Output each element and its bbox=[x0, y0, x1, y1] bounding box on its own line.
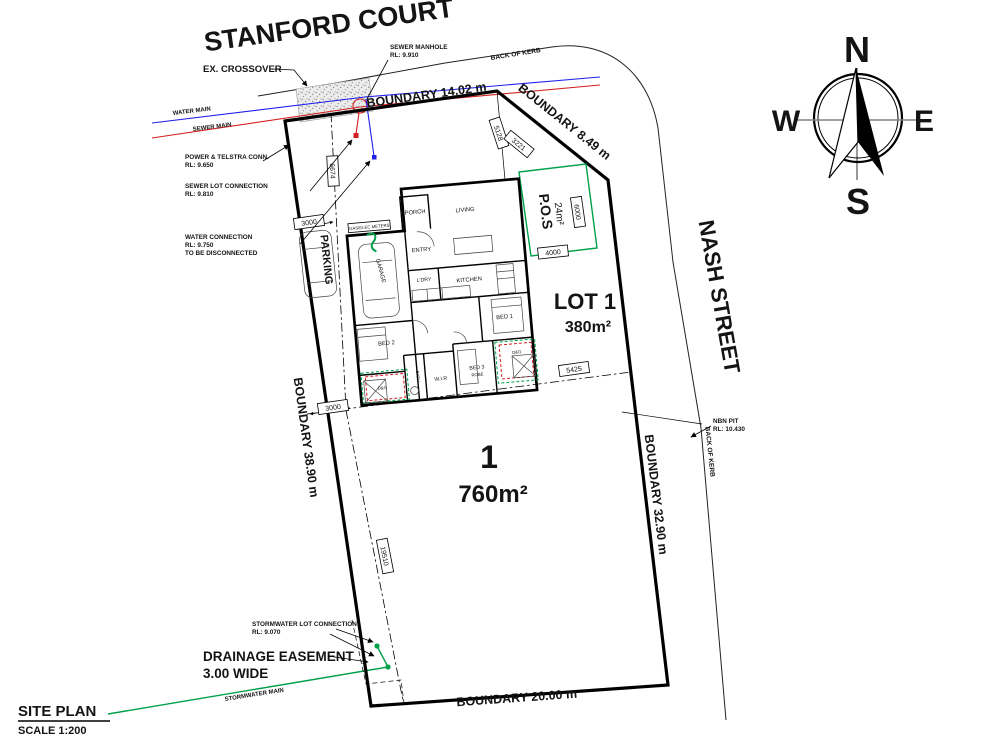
lot-division-line bbox=[307, 372, 631, 414]
stormwater-lot-rl: RL: 9.070 bbox=[252, 629, 281, 636]
bed2-door-arc bbox=[413, 319, 428, 334]
living-kitchen-wall bbox=[408, 260, 526, 270]
boundary-left-label: BOUNDARY 38.90 m bbox=[291, 377, 322, 499]
porch-label: PORCH bbox=[404, 209, 425, 217]
sewer-lot-label: SEWER LOT CONNECTION bbox=[185, 183, 268, 190]
water-connection-label: WATER CONNECTION bbox=[185, 234, 253, 241]
bed2-dg-wall bbox=[359, 371, 405, 375]
entry-label: ENTRY bbox=[411, 247, 431, 255]
gas-meter-icon bbox=[367, 233, 377, 252]
stormwater-connection-point-2 bbox=[385, 664, 390, 669]
back-of-kerb-top-label: BACK OF KERB bbox=[490, 47, 541, 62]
bed1-west-wall bbox=[479, 297, 483, 342]
lot1-area-label: 380m² bbox=[565, 319, 611, 336]
stormwater-lot-label: STORMWATER LOT CONNECTION bbox=[252, 621, 357, 628]
bed1-label: BED 1 bbox=[496, 314, 513, 321]
dim-4000: 4000 bbox=[538, 245, 569, 259]
dg-left-label: D&G bbox=[377, 385, 387, 391]
power-telstra-rl: RL: 9.650 bbox=[185, 162, 214, 169]
footer: SITE PLAN SCALE 1:200 bbox=[18, 703, 110, 737]
bed3-robe-label: ROBE bbox=[471, 372, 484, 378]
boundary-top-label: BOUNDARY 14.02 m bbox=[366, 80, 488, 111]
boundary-bottom-label: BOUNDARY 20.00 m bbox=[456, 687, 578, 709]
bed2-pillow bbox=[358, 335, 386, 337]
kitchen-island bbox=[454, 235, 493, 254]
kitchen-label: KITCHEN bbox=[456, 276, 482, 284]
compass-w: W bbox=[772, 105, 801, 138]
compass-rose: N S W E bbox=[772, 29, 934, 222]
water-connection-point bbox=[372, 155, 377, 160]
nbn-crossing-line bbox=[622, 412, 702, 424]
streets: BACK OF KERB BACK OF KERB STANFORD COURT… bbox=[202, 0, 745, 720]
site-plan-drawing: BACK OF KERB BACK OF KERB STANFORD COURT… bbox=[0, 0, 985, 741]
dg-right-label: D&G bbox=[512, 349, 522, 355]
bed3-door-arc bbox=[454, 331, 467, 344]
water-connection-note: TO BE DISCONNECTED bbox=[185, 250, 258, 257]
water-connection-rl: RL: 9.750 bbox=[185, 242, 214, 249]
sewer-manhole-label: SEWER MANHOLE bbox=[390, 44, 448, 51]
sewer-main-label: SEWER MAIN bbox=[193, 122, 232, 133]
nbn-pit-label: NBN PIT bbox=[713, 418, 739, 425]
kitchen-bench bbox=[412, 285, 471, 301]
annotations: EX. CROSSOVER SEWER MANHOLE RL: 9.910 PO… bbox=[185, 44, 745, 681]
bench-divider-1 bbox=[427, 289, 428, 300]
dim-19510: 19510 bbox=[376, 538, 393, 573]
garage-bed2-wall bbox=[355, 321, 413, 326]
pantry-shelf-2 bbox=[497, 277, 514, 278]
pantry-shelf-1 bbox=[497, 271, 514, 272]
stormwater-riser bbox=[377, 646, 388, 667]
bed1-pillow bbox=[492, 305, 522, 308]
dim-3000-bottom: 3000 bbox=[317, 399, 348, 414]
nash-street-label: NASH STREET bbox=[694, 218, 746, 376]
kitchen-hall-wall bbox=[411, 292, 529, 302]
sewer-lot-rl: RL: 9.810 bbox=[185, 191, 214, 198]
toilet bbox=[410, 386, 419, 395]
dim-6674: 6674 bbox=[327, 156, 340, 187]
wir-east-wall bbox=[453, 344, 458, 397]
garage-label: GARAGE bbox=[374, 258, 386, 284]
car-rear-window bbox=[366, 298, 396, 301]
laundry-label: L'DRY bbox=[416, 277, 432, 284]
power-telstra-leader bbox=[263, 145, 289, 161]
sewer-connection-point bbox=[354, 133, 359, 138]
drainage-easement-width: 3.00 WIDE bbox=[203, 666, 268, 681]
compass-n: N bbox=[844, 29, 870, 70]
hall-south-wall-1 bbox=[404, 351, 454, 355]
parent-lot-area: 760m² bbox=[458, 481, 527, 508]
living-label: LIVING bbox=[455, 207, 475, 215]
dim-6674-value: 6674 bbox=[328, 163, 336, 179]
nbn-pit-rl: RL: 10.430 bbox=[713, 426, 745, 433]
stormwater-connection-point-1 bbox=[374, 643, 379, 648]
private-open-space: P.O.S 24m² bbox=[519, 164, 597, 256]
power-telstra-label: POWER & TELSTRA CONN. bbox=[185, 154, 269, 161]
sewer-manhole-rl: RL: 9.910 bbox=[390, 52, 419, 59]
garage-car bbox=[358, 242, 400, 319]
wir-label: W.I.R bbox=[434, 376, 447, 383]
dim-6000: 6000 bbox=[570, 196, 585, 227]
bench-divider-2 bbox=[442, 288, 443, 299]
bath-west-wall bbox=[404, 355, 408, 401]
site-plan-title: SITE PLAN bbox=[18, 703, 96, 720]
dim-5128: 5128 bbox=[489, 117, 509, 149]
laundry-wall bbox=[438, 268, 441, 300]
site-plan-page: BACK OF KERB BACK OF KERB STANFORD COURT… bbox=[0, 0, 985, 741]
lot-area-texts: LOT 1 380m² 1 760m² bbox=[458, 289, 616, 508]
sewer-connection-drop bbox=[356, 113, 359, 134]
dim-5425: 5425 bbox=[558, 361, 589, 376]
entry-door-arc bbox=[417, 230, 434, 247]
bed2-label: BED 2 bbox=[378, 340, 395, 347]
back-of-kerb-right-label: BACK OF KERB bbox=[703, 426, 715, 477]
bath-label: BATH bbox=[415, 370, 421, 382]
utility-mains: WATER MAIN SEWER MAIN STORMWATER MAIN bbox=[108, 77, 600, 714]
lot1-label: LOT 1 bbox=[554, 289, 616, 314]
compass-s: S bbox=[846, 181, 870, 222]
scale-label: SCALE 1:200 bbox=[18, 725, 86, 737]
back-of-kerb-line-top bbox=[258, 46, 726, 720]
compass-e: E bbox=[914, 105, 934, 138]
water-main-label: WATER MAIN bbox=[173, 106, 212, 117]
bath-east-wall bbox=[423, 354, 427, 400]
parent-lot-number: 1 bbox=[480, 439, 498, 475]
ex-crossover-label: EX. CROSSOVER bbox=[203, 64, 282, 75]
house-plan: GAS/ELEC METERS PORCH ENTRY LIVING KITCH… bbox=[343, 179, 539, 406]
